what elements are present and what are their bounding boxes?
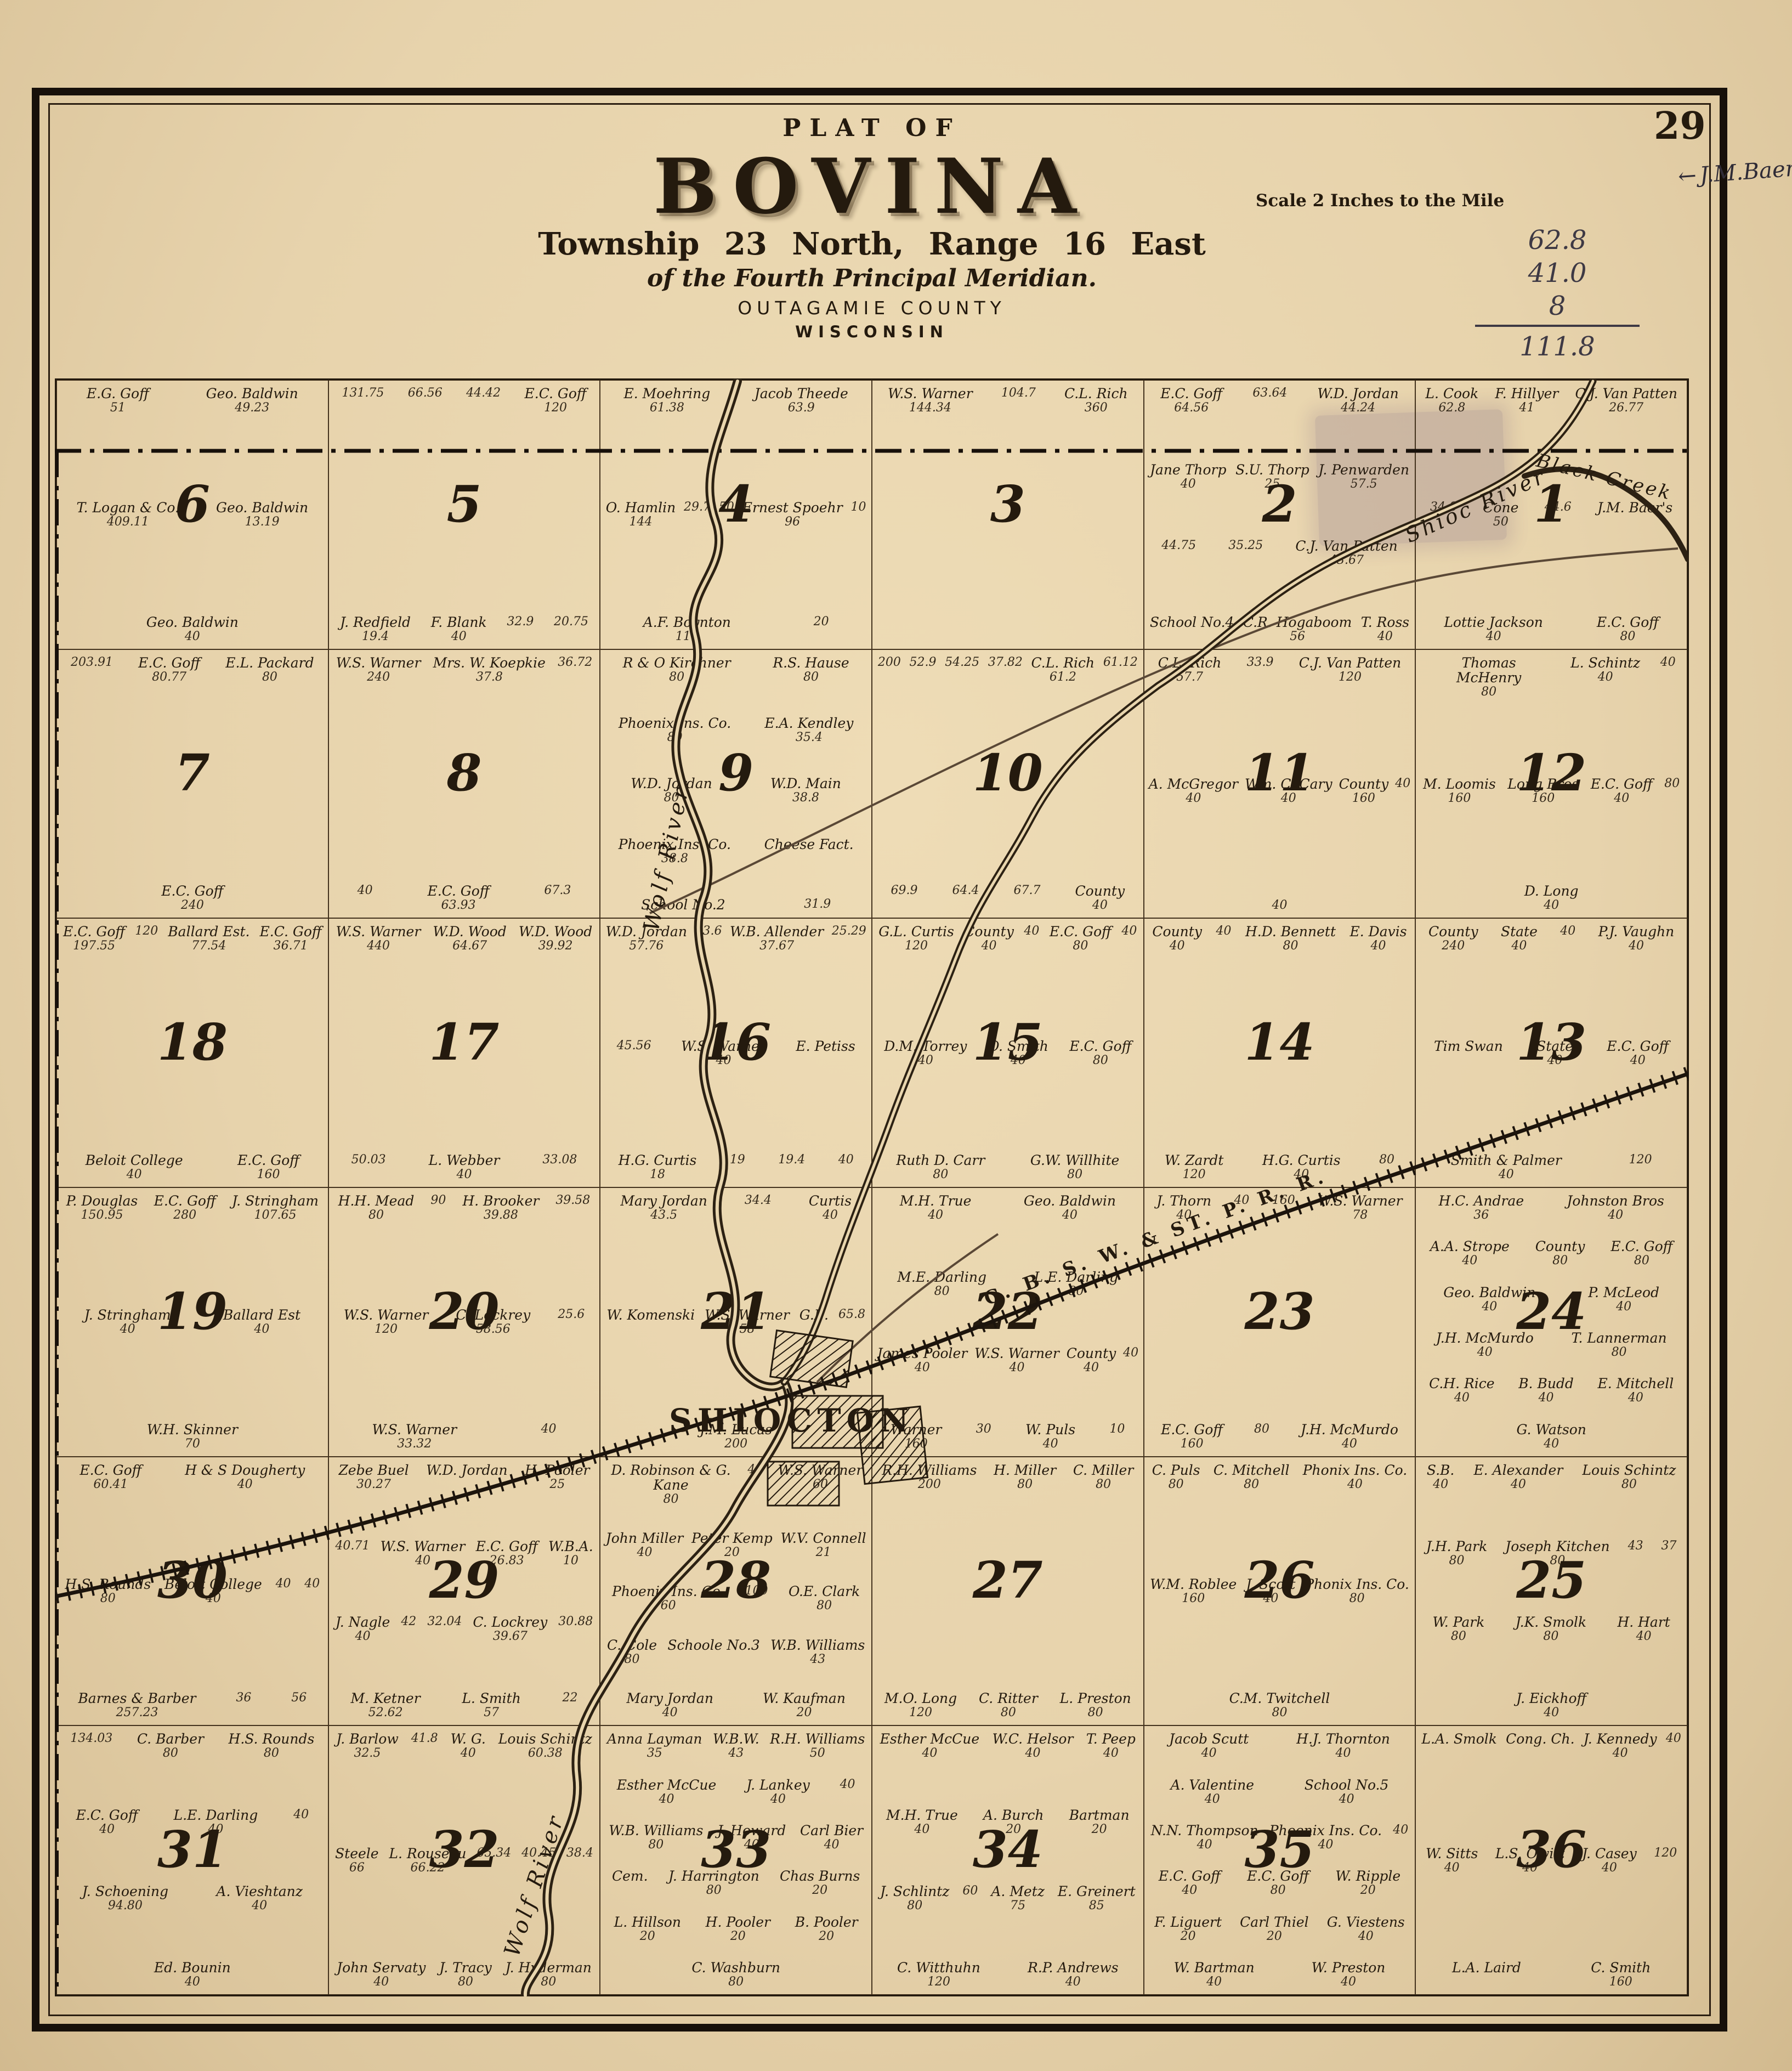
parcel-owner: Warner <box>891 1422 942 1437</box>
parcel-acres: 61.12 <box>1103 655 1138 669</box>
parcel: L.A. Smolk <box>1421 1732 1497 1760</box>
parcel-owner: Beloit College <box>86 1153 183 1168</box>
parcel-acres: 80 <box>1426 1554 1487 1568</box>
section-parcels: 134.03C. Barber80H.S. Rounds80E.C. Goff4… <box>61 1732 324 1989</box>
parcel-owner: L.A. Laird <box>1452 1960 1521 1975</box>
section: 19 P. Douglas150.95E.C. Goff280J. String… <box>56 1187 328 1457</box>
parcel-owner: E.C. Goff <box>1607 1039 1669 1054</box>
section-parcels: J. Barlow32.541.8W. G.40Louis Schintz60.… <box>333 1732 596 1989</box>
parcel: County40 <box>1067 1346 1116 1374</box>
parcel-acres: 40 <box>1024 924 1039 938</box>
parcel: E.C. Goff80 <box>1247 1869 1309 1897</box>
handwritten-line: 8 <box>1475 290 1640 322</box>
parcel: County160 <box>1339 777 1389 805</box>
parcel-acres: 40 <box>1567 1208 1664 1222</box>
parcel: W.D. Jordan44.24 <box>1317 386 1398 415</box>
parcel-owner: E.C. Goff <box>76 1808 138 1823</box>
parcel: W. Ripple20 <box>1335 1869 1400 1897</box>
parcel: W.M. Roblee160 <box>1150 1577 1237 1605</box>
parcel-owner: Geo. Baldwin <box>146 615 239 630</box>
parcel-owner: C. Cole <box>607 1638 657 1653</box>
parcel-owner: W.S. Warner <box>336 655 421 670</box>
parcel-acres: 66.56 <box>408 386 443 400</box>
parcel: H. Hart40 <box>1617 1615 1670 1643</box>
parcel-owner: H. Miller <box>994 1463 1056 1478</box>
parcel-acres: 40 <box>1427 1478 1455 1491</box>
parcel: W.S. Warner240 <box>336 655 421 684</box>
parcel-owner: C. Washburn <box>691 1960 780 1975</box>
parcel-owner: C. Ritter <box>979 1691 1038 1706</box>
section: 36 L.A. SmolkCong. Ch.J. Kennedy4040W. S… <box>1415 1725 1687 1995</box>
parcel-acres: 40 <box>1495 1861 1565 1875</box>
section-parcels: W.S. Warner240Mrs. W. Koepkie37.836.7240… <box>333 655 596 913</box>
parcel: R.H. Williams50 <box>770 1732 865 1760</box>
parcel: C. Mitchell80 <box>1213 1463 1290 1491</box>
parcel: Geo. Baldwin40 <box>146 615 239 643</box>
parcel-acres: 37.8 <box>433 670 546 684</box>
parcel-acres: 40 <box>1272 898 1287 912</box>
parcel-acres: 26.83 <box>476 1554 538 1568</box>
parcel-acres: 80 <box>1610 1254 1672 1268</box>
parcel-owner: J. Harrington <box>668 1869 759 1883</box>
parcel: County40 <box>964 924 1014 953</box>
parcel-owner: E.C. Goff <box>427 884 489 898</box>
section: 29 Zebe Buel30.27W.D. JordanH. Pooler254… <box>328 1457 600 1726</box>
parcel-owner: O. Smith <box>988 1039 1048 1054</box>
parcel: 60 <box>962 1884 978 1912</box>
parcel-acres: 19 <box>730 1153 745 1167</box>
parcel-acres: 96 <box>742 515 843 529</box>
parcel-acres: 40 <box>1159 1883 1221 1897</box>
parcel-acres: 80 <box>631 791 712 805</box>
parcel-acres: 40 <box>1660 655 1676 669</box>
parcel-owner: J.M. Lucas <box>700 1422 772 1437</box>
parcel-owner: Wm. C. Cary <box>1245 777 1332 791</box>
parcel-owner: W.C. Helsor <box>993 1732 1074 1746</box>
parcel: W.D. Jordan57.76 <box>606 924 687 953</box>
section: 32 J. Barlow32.541.8W. G.40Louis Schintz… <box>328 1725 600 1995</box>
parcel-owner: Phonix Ins. Co. <box>1303 1463 1408 1478</box>
parcel: M.H. True40 <box>886 1808 958 1836</box>
parcel-acres: 40 <box>1296 1746 1390 1760</box>
parcel-owner: F. Blank <box>431 615 487 630</box>
parcel: Geo. Baldwin40 <box>1443 1285 1535 1314</box>
parcel: 40 <box>293 1808 309 1836</box>
parcel: M.O. Long120 <box>884 1691 957 1719</box>
parcel-owner: County <box>964 924 1014 939</box>
parcel-owner: J. Hyderman <box>506 1960 592 1975</box>
parcel: J. Penwarden57.5 <box>1318 462 1409 491</box>
parcel-acres: 57.5 <box>1318 477 1409 491</box>
parcel-acres: 80 <box>1516 1629 1587 1643</box>
parcel-acres: 40 <box>988 1054 1048 1067</box>
parcel-acres: 240 <box>161 898 223 912</box>
parcel-acres: 70 <box>147 1437 238 1451</box>
parcel-owner: E.C. Goff <box>1069 1039 1131 1054</box>
parcel-acres: 40 <box>1075 898 1125 912</box>
parcel-acres: 10 <box>851 500 866 514</box>
parcel-owner: J. Redfield <box>340 615 411 630</box>
parcel-acres: 40 <box>617 1792 717 1806</box>
parcel-acres: 40 <box>974 1361 1059 1374</box>
parcel: C. Washburn80 <box>691 1960 780 1989</box>
parcel: Tim Swan <box>1434 1039 1503 1067</box>
parcel: W. Preston40 <box>1312 1960 1386 1989</box>
parcel-acres: 40 <box>293 1808 309 1821</box>
parcel: 25.29 <box>832 924 866 953</box>
parcel-acres: 160 <box>1591 1975 1651 1989</box>
parcel: T. Peep40 <box>1086 1732 1136 1760</box>
parcel-acres: 40 <box>1150 477 1227 491</box>
parcel-acres: 37 <box>1661 1539 1677 1553</box>
parcel-owner: Beloit College <box>165 1577 262 1592</box>
parcel-acres: 80 <box>1034 1285 1119 1298</box>
parcel: 40.71 <box>335 1539 370 1568</box>
parcel-owner: S.U. Thorp <box>1235 462 1309 477</box>
parcel-owner: P. Douglas <box>66 1193 138 1208</box>
parcel-owner: Ruth D. Carr <box>896 1153 985 1168</box>
parcel-acres: 67.7 <box>1014 884 1041 897</box>
parcel-acres: 80 <box>1664 777 1680 790</box>
parcel-acres: 40 <box>1245 791 1332 805</box>
parcel-acres: 80 <box>1427 685 1551 699</box>
parcel: Ruth D. Carr80 <box>896 1153 985 1181</box>
parcel-acres: 107.65 <box>232 1208 319 1222</box>
parcel: C. Smith160 <box>1591 1960 1651 1989</box>
parcel-owner: Mary Jordan <box>620 1193 707 1208</box>
parcel-owner: R & O Kirchner <box>623 655 731 670</box>
handwritten-line: 41.0 <box>1475 257 1640 290</box>
parcel-acres: 60 <box>962 1884 978 1898</box>
parcel-acres: 40 <box>747 1463 763 1476</box>
parcel-owner: R.H. Williams <box>882 1463 977 1478</box>
parcel: W.S. Warner40 <box>681 1039 766 1067</box>
parcel-acres: 80 <box>1582 1478 1676 1491</box>
parcel-owner: A.F. Boynton <box>643 615 731 630</box>
parcel-owner: School No.5 <box>1305 1778 1389 1792</box>
parcel-acres: 32.04 <box>427 1615 462 1628</box>
scale-note: Scale 2 Inches to the Mile <box>1256 191 1504 211</box>
parcel: Zebe Buel30.27 <box>338 1463 409 1491</box>
parcel-acres: 150.95 <box>66 1208 138 1222</box>
parcel-acres: 80 <box>1060 1706 1131 1719</box>
parcel-owner: W.D. Wood <box>433 924 506 939</box>
parcel: C.L. Rich360 <box>1064 386 1128 415</box>
section: 22 M.H. True40Geo. Baldwin40M.E. Darling… <box>872 1187 1144 1457</box>
parcel: A. Vieshtanz40 <box>216 1884 303 1912</box>
parcel: A. Metz75 <box>991 1884 1045 1912</box>
parcel-acres: 80 <box>1432 1629 1484 1643</box>
parcel-acres: 40 <box>1443 1300 1535 1314</box>
parcel-owner: T. Logan & Co. <box>77 500 179 515</box>
section-parcels: W.S. Warner440W.D. Wood64.67W.D. Wood39.… <box>333 924 596 1181</box>
parcel-owner: E.C. Goff <box>154 1193 216 1208</box>
parcel-owner: C. Miller <box>1073 1463 1133 1478</box>
parcel-acres: 40 <box>1121 924 1137 938</box>
parcel-owner: W.D. Jordan <box>631 776 712 791</box>
parcel: J. Howard40 <box>717 1823 786 1852</box>
parcel-owner: E. Alexander <box>1473 1463 1563 1478</box>
parcel-acres: 63.93 <box>427 898 489 912</box>
parcel-acres: 10 <box>548 1554 593 1568</box>
parcel-acres: 240 <box>1428 939 1478 953</box>
parcel-owner: J. Scott <box>1246 1577 1295 1592</box>
section-parcels: E.C. Goff60.41H & S Dougherty40H.S. Roun… <box>61 1463 324 1720</box>
parcel-owner: Jane Thorp <box>1150 462 1227 477</box>
parcel: 39.58 <box>555 1193 590 1222</box>
parcel: E.C. Goff64.56 <box>1160 386 1222 415</box>
parcel-owner: G.L. Curtis <box>878 924 954 939</box>
parcel: 44.6 <box>1545 500 1572 529</box>
parcel-acres: 80 <box>609 1838 703 1852</box>
parcel-acres: 80 <box>691 1975 780 1989</box>
parcel: W.C. Helsor40 <box>993 1732 1074 1760</box>
parcel-owner: L. Webber <box>429 1153 500 1168</box>
handwritten-total: 111.8 <box>1475 325 1640 363</box>
parcel: Warner160 <box>891 1422 942 1451</box>
parcel: S.B.40 <box>1427 1463 1455 1491</box>
parcel-owner: E. Moehring <box>624 386 711 401</box>
parcel-acres: 40 <box>1501 939 1538 953</box>
parcel-acres: 160 <box>1161 1437 1223 1451</box>
parcel-acres: 40 <box>1123 1346 1138 1360</box>
parcel-owner: C.H. Rice <box>1429 1376 1495 1391</box>
parcel-owner: Phonix Ins. Co. <box>1305 1577 1409 1592</box>
parcel-owner: Geo. Baldwin <box>1024 1193 1116 1208</box>
parcel: M. Ketner52.62 <box>350 1691 420 1719</box>
parcel-owner: W.B. Williams <box>609 1823 703 1838</box>
parcel-owner: J. Schoening <box>82 1884 168 1899</box>
title-prefix: PLAT OF <box>351 114 1393 142</box>
parcel: Jacob Theede63.9 <box>755 386 848 415</box>
parcel: J. Lankey40 <box>746 1778 810 1806</box>
parcel: W.D. Wood39.92 <box>519 924 592 953</box>
parcel-owner: R.P. Andrews <box>1028 1960 1119 1975</box>
parcel-owner: W.B. Allender <box>730 924 824 939</box>
parcel-acres: 120 <box>1165 1168 1224 1181</box>
parcel-owner: H.J. Thornton <box>1296 1732 1390 1746</box>
parcel: J. Barlow32.5 <box>336 1732 399 1760</box>
section-parcels: H.C. Andrae36Johnston Bros40A.A. Strope4… <box>1420 1193 1682 1451</box>
parcel: D. Robinson & G. Kane80 <box>609 1463 733 1506</box>
parcel-owner: C.J. Van Patten <box>1575 386 1677 401</box>
parcel-acres: 34.4 <box>745 1193 772 1207</box>
parcel-acres: 35.25 <box>1228 539 1263 552</box>
parcel: G. Viestens40 <box>1327 1915 1405 1943</box>
parcel: R.S. Hause80 <box>773 655 849 684</box>
parcel-owner: J.K. Smolk <box>1516 1615 1587 1629</box>
parcel: 56 <box>291 1691 307 1719</box>
parcel: E.C. Goff197.55 <box>63 924 125 953</box>
parcel: C.L. Rich61.2 <box>1031 655 1095 684</box>
parcel: W.V. Connell21 <box>781 1531 866 1559</box>
parcel-acres: 40 <box>216 1899 303 1912</box>
parcel-owner: Steele <box>335 1846 379 1861</box>
parcel-acres: 40 <box>304 1577 320 1591</box>
parcel-acres: 40 <box>1149 791 1238 805</box>
parcel-acres: 21 <box>781 1546 866 1559</box>
parcel-acres: 100 <box>745 1584 768 1598</box>
parcel: County80 <box>1535 1239 1585 1268</box>
parcel-owner: County <box>1152 924 1202 939</box>
parcel-owner: R.H. Williams <box>770 1732 865 1746</box>
parcel-acres: 80 <box>789 1599 860 1612</box>
parcel: W. G.40 <box>451 1732 486 1760</box>
parcel-acres: 80 <box>1213 1478 1290 1491</box>
section: 21 Mary Jordan43.534.4Curtis40W. Komensk… <box>600 1187 872 1457</box>
parcel: J. Casey40 <box>1582 1846 1637 1875</box>
parcel-owner: Carl Bier <box>800 1823 863 1838</box>
parcel: E.C. Goff63.93 <box>427 884 489 912</box>
parcel-owner: C. Smith <box>1591 1960 1651 1975</box>
parcel: A.A. Strope40 <box>1430 1239 1510 1268</box>
parcel-owner: J.M. Baer's <box>1597 500 1672 515</box>
parcel: Schoole No.3 <box>667 1638 759 1666</box>
parcel-acres: 58.56 <box>456 1322 530 1336</box>
parcel-owner: J.H. McMurdo <box>1436 1331 1534 1345</box>
parcel: 40 <box>1216 924 1231 953</box>
parcel-acres: 40 <box>1152 939 1202 953</box>
parcel-owner: H & S Dougherty <box>185 1463 305 1478</box>
parcel: 20.75 <box>554 615 588 643</box>
parcel: 41.8 <box>411 1732 438 1760</box>
parcel: 80 <box>1379 1153 1394 1181</box>
parcel: 44.42 <box>466 386 501 415</box>
parcel-acres: 50.03 <box>351 1153 386 1167</box>
parcel-owner: E. Mitchell <box>1598 1376 1674 1391</box>
parcel-owner: G. Viestens <box>1327 1915 1405 1929</box>
parcel-acres: 40 <box>429 1168 500 1181</box>
parcel-acres: 40 <box>223 1322 300 1336</box>
parcel: 40 <box>1393 1823 1408 1852</box>
parcel-acres: 52.62 <box>350 1706 420 1719</box>
parcel: E.C. Goff80 <box>1597 615 1659 643</box>
parcel-owner: C.J. Van Patten <box>1295 539 1397 553</box>
section: 17 W.S. Warner440W.D. Wood64.67W.D. Wood… <box>328 918 600 1187</box>
parcel-acres: 80 <box>994 1478 1056 1491</box>
parcel-owner: H.D. Bennett <box>1245 924 1336 939</box>
parcel-owner: W. Kaufman <box>763 1691 846 1706</box>
parcel: 45.56 <box>617 1039 651 1067</box>
parcel: 40 <box>1395 777 1410 805</box>
parcel-acres: 64.4 <box>952 884 979 897</box>
parcel-owner: Carl Thiel <box>1240 1915 1309 1929</box>
parcel-owner: Anna Layman <box>607 1732 702 1746</box>
parcel: School No.540 <box>1305 1778 1389 1806</box>
parcel-acres: 40 <box>451 1746 486 1760</box>
parcel: Phonix Ins. Co.80 <box>1305 1577 1409 1605</box>
parcel: W.S. Warner33.32 <box>372 1422 457 1451</box>
parcel-acres: 20 <box>1335 1883 1400 1897</box>
parcel-acres: 440 <box>336 939 421 953</box>
parcel: L.E. Darling40 <box>174 1808 258 1836</box>
parcel: G. Watson40 <box>1516 1422 1586 1451</box>
parcel-owner: M.O. Long <box>884 1691 957 1706</box>
parcel: C.J. Van Patten26.77 <box>1575 386 1677 415</box>
parcel-acres: 25.29 <box>832 924 866 938</box>
parcel-acres: 40 <box>606 1546 684 1559</box>
parcel: E.C. Goff280 <box>154 1193 216 1222</box>
parcel-owner: Chas Burns <box>780 1869 860 1883</box>
parcel: 40 <box>304 1577 320 1605</box>
parcel-owner: M. Loomis <box>1423 777 1496 791</box>
parcel: 61.12 <box>1103 655 1138 684</box>
parcel-owner: A. Vieshtanz <box>216 1884 303 1899</box>
parcel-acres: 39.67 <box>473 1629 547 1643</box>
parcel: 200 <box>878 655 901 684</box>
parcel-acres: 39.88 <box>462 1208 539 1222</box>
parcel-owner: W.D. Main <box>770 776 841 791</box>
parcel-acres: 80 <box>773 670 849 684</box>
parcel: E.C. Goff40 <box>76 1808 138 1836</box>
parcel: Jacob Scutt40 <box>1169 1732 1249 1760</box>
section-parcels: 131.7566.5644.42E.C. Goff120J. Redfield1… <box>333 386 596 643</box>
parcel-acres: 34.8 <box>1430 500 1457 514</box>
parcel-acres: 40 <box>1216 924 1231 938</box>
parcel: E.C. Goff40 <box>1591 777 1653 805</box>
section: 34 Esther McCue40W.C. Helsor40T. Peep40M… <box>872 1725 1144 1995</box>
parcel: 43 <box>1628 1539 1643 1568</box>
section-parcels: E.C. Goff197.55120Ballard Est.77.54E.C. … <box>61 924 324 1181</box>
parcel-owner: Barnes & Barber <box>78 1691 196 1706</box>
parcel-owner: A.A. Strope <box>1430 1239 1510 1254</box>
parcel-owner: C.L. Rich <box>1064 386 1128 401</box>
parcel: 34.8 <box>1430 500 1457 529</box>
meridian-line: of the Fourth Principal Meridian. <box>351 264 1393 292</box>
parcel-acres: 20 <box>614 1929 681 1943</box>
parcel-acres: 20 <box>691 1546 773 1559</box>
parcel: E.G. Goff51 <box>87 386 149 415</box>
parcel-acres: 80 <box>609 1492 733 1506</box>
parcel-acres: 77.54 <box>168 939 249 953</box>
section: 8 W.S. Warner240Mrs. W. Koepkie37.836.72… <box>328 649 600 919</box>
parcel: C. Miller80 <box>1073 1463 1133 1491</box>
plat-page: PLAT OF BOVINA Township 23 North, Range … <box>0 0 1792 2071</box>
parcel-acres: 63.9 <box>755 401 848 415</box>
section-parcels: R & O Kirchner80R.S. Hause80Phoenix Ins.… <box>605 655 867 913</box>
parcel: E.C. Goff240 <box>161 884 223 912</box>
parcel-acres: 37.82 <box>988 655 1023 669</box>
parcel-owner: W. Sitts <box>1426 1846 1478 1861</box>
parcel-owner: E.C. Goff <box>1610 1239 1672 1254</box>
parcel-owner: M. Ketner <box>350 1691 420 1706</box>
parcel: Phoenix Ins. Co.40 <box>1269 1823 1382 1852</box>
parcel: M.H. True40 <box>900 1193 972 1222</box>
parcel-acres: 80 <box>229 1746 315 1760</box>
parcel-acres: 58 <box>705 1322 790 1336</box>
parcel: G.E.1 <box>799 1308 829 1336</box>
parcel: 35.25 <box>1228 539 1263 567</box>
parcel: H.J. Thornton40 <box>1296 1732 1390 1760</box>
handwritten-line: 62.8 <box>1475 224 1640 257</box>
parcel-acres: 40 <box>86 1168 183 1181</box>
parcel-acres: 80 <box>1247 1883 1309 1897</box>
parcel: E.C. Goff80 <box>1050 924 1112 953</box>
parcel-acres: 40 <box>1451 1168 1562 1181</box>
parcel-owner: N.N. Thompson <box>1151 1823 1258 1838</box>
parcel-acres: 85 <box>1058 1899 1136 1912</box>
parcel-acres: 80 <box>1535 1254 1585 1268</box>
parcel: 203.91 <box>71 655 113 684</box>
parcel: L. Cook62.8 <box>1425 386 1478 415</box>
parcel-acres: 40 <box>1395 777 1410 790</box>
parcel-owner: W.V. Connell <box>781 1531 866 1546</box>
parcel-owner: E.C. Goff <box>1161 1422 1223 1437</box>
parcel-acres: 40 <box>1607 1054 1669 1067</box>
parcel: J. Scott40 <box>1246 1577 1295 1605</box>
parcel-owner: L. Rouseau <box>389 1846 466 1861</box>
parcel-acres: 39.58 <box>555 1193 590 1207</box>
